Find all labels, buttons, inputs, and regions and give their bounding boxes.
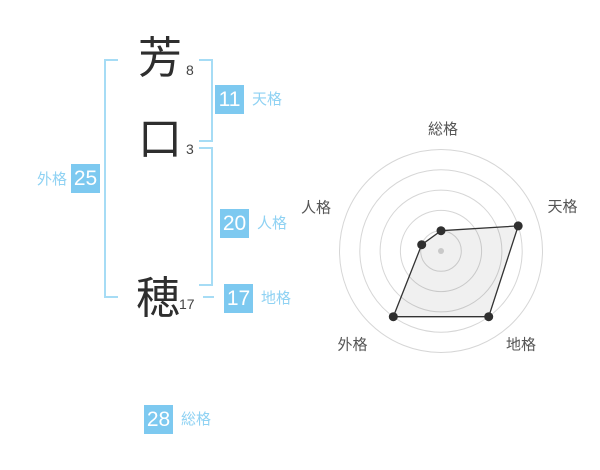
stroke-count-2: 3 [186,142,194,156]
radar-axis-label: 地格 [506,337,536,354]
chikaku-label: 地格 [261,291,291,306]
name-character-2: 口 [138,118,182,162]
name-character-1: 芳 [138,37,182,81]
soukaku-value-box: 28 [144,405,173,434]
tenkaku-label: 天格 [252,92,282,107]
chikaku-value-box: 17 [224,284,253,313]
soukaku-label: 総格 [181,412,211,427]
radar-axis-label: 外格 [337,337,367,354]
name-character-3: 穂 [136,277,180,321]
tenkaku-bracket [199,59,213,142]
radar-axis-label: 天格 [547,199,577,216]
radar-data-polygon [393,226,518,317]
gaikaku-value-box: 25 [71,164,100,193]
gaikaku-bracket [104,59,118,298]
jinkaku-bracket [199,147,213,286]
stroke-count-3: 17 [179,297,195,311]
jinkaku-label: 人格 [257,216,287,231]
jinkaku-value-box: 20 [220,209,249,238]
stroke-count-1: 8 [186,63,194,77]
radar-data-point [417,240,426,249]
chikaku-dash [203,296,214,298]
radar-data-point [437,226,446,235]
radar-data-point [484,312,493,321]
radar-data-point [514,221,523,230]
tenkaku-value-box: 11 [215,85,244,114]
radar-chart: 総格天格地格外格人格 [290,110,600,365]
radar-axis-label: 総格 [428,121,458,138]
radar-axis-label: 人格 [301,200,331,217]
radar-data-point [389,312,398,321]
gaikaku-label: 外格 [37,172,67,187]
radar-center-dot [438,248,444,254]
name-fortune-panel: 芳 8 口 3 穂 17 11 天格 20 人格 17 地格 外格 25 28 … [0,0,600,470]
